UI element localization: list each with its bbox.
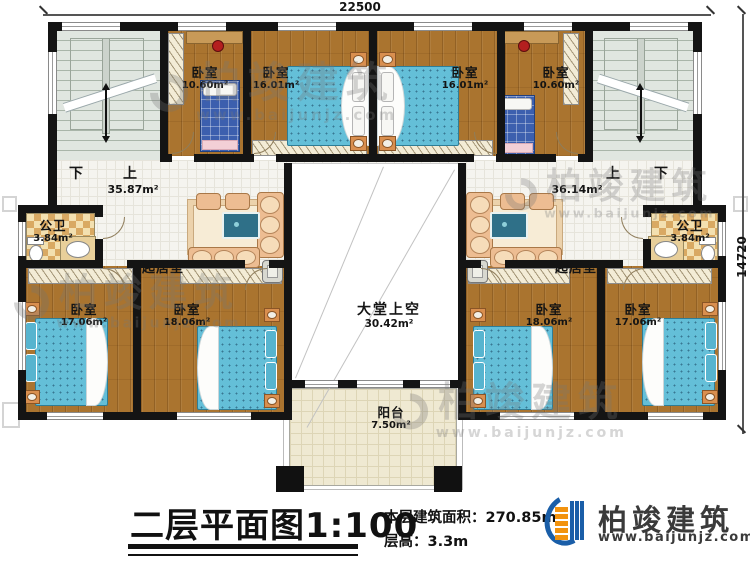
pillow (705, 354, 717, 382)
room-label-hall-void: 大堂上空 30.42m² (339, 303, 439, 330)
nightstand (702, 390, 718, 404)
pillow (381, 72, 394, 102)
pillow (25, 322, 37, 350)
dimension-top: 22500 (330, 0, 390, 14)
wall-segment (338, 380, 357, 388)
wall-segment (578, 154, 593, 162)
dimension-right: 14720 (735, 227, 749, 287)
armchair (500, 193, 525, 210)
wall-segment (496, 154, 556, 162)
nightstand (350, 136, 367, 151)
desk-lamp (212, 40, 224, 52)
blanket (202, 140, 238, 150)
plan-title-text: 二层平面图 (130, 506, 305, 546)
room-label-bedroom: 卧室 10.60m² (516, 66, 596, 91)
room-label-bedroom: 卧室 16.01m² (433, 66, 497, 91)
bed-sheet (642, 318, 664, 406)
room-label-balcony: 阳台 7.50m² (341, 406, 441, 431)
window (178, 22, 226, 31)
room-label-bedroom: 卧室 10.60m² (165, 66, 245, 91)
floor-area-line: 本层建筑面积：270.85m² (384, 506, 563, 527)
sofa-cushion (470, 216, 490, 234)
sofa-cushion (470, 196, 490, 214)
sofa-cushion (260, 216, 280, 234)
brand-logo-icon (545, 492, 593, 550)
balcony-column (276, 466, 304, 492)
room-label-bathroom: 公卫 3.84m² (660, 219, 720, 244)
wall-segment (48, 22, 57, 213)
stair-up-label: 上 (123, 163, 137, 183)
armchair (196, 193, 221, 210)
pillow (25, 354, 37, 382)
room-label-bedroom: 卧室 18.06m² (147, 303, 227, 328)
stair-direction-arrow (640, 90, 642, 136)
room-label-living: 起居室 (133, 262, 193, 277)
wall-segment (585, 22, 593, 162)
stair-down-label: 下 (654, 163, 668, 183)
window (524, 22, 572, 31)
wall-segment (643, 260, 726, 268)
nightstand (470, 394, 486, 408)
window (648, 412, 703, 420)
coffee-table (222, 212, 260, 239)
nightstand (264, 308, 280, 322)
wall-segment (133, 260, 141, 420)
nightstand (24, 302, 40, 316)
window (718, 302, 726, 370)
pillow (381, 106, 394, 136)
balcony-door-window (305, 380, 338, 388)
window (62, 22, 120, 31)
floor-plan-page: 22500 14720 (0, 0, 750, 561)
window (18, 302, 26, 370)
wall-segment (160, 154, 172, 162)
eave-outline (733, 196, 748, 212)
sofa-cushion (260, 196, 280, 214)
wall-segment (403, 380, 420, 388)
wall-segment (18, 260, 103, 268)
nightstand (379, 52, 396, 67)
arrow-up-icon (636, 83, 644, 90)
pillow (265, 362, 277, 390)
nightstand (24, 390, 40, 404)
logo-building-blue (570, 501, 585, 540)
arrow-down-icon (102, 136, 110, 143)
armchair (225, 193, 250, 210)
wall-segment (450, 380, 466, 388)
room-label-bedroom: 卧室 18.06m² (509, 303, 589, 328)
wall-segment (597, 260, 605, 420)
stair-left-area: 35.87m² (103, 184, 163, 196)
pillow (473, 362, 485, 390)
floor-height-value: 3.3m (428, 534, 469, 550)
pillow (352, 72, 365, 102)
pillow (352, 106, 365, 136)
wall-segment (276, 154, 474, 162)
balcony-floor (289, 388, 457, 486)
window (278, 22, 336, 31)
stair-down-label: 下 (69, 163, 83, 183)
wall-segment (194, 154, 254, 162)
room-label-bedroom: 卧室 17.06m² (44, 303, 124, 328)
floor-area-label: 本层建筑面积： (384, 510, 486, 526)
stair-right-area: 36.14m² (547, 184, 607, 196)
logo-building-orange (555, 507, 568, 540)
wall-segment (160, 22, 168, 162)
window (177, 412, 251, 420)
room-label-bedroom: 卧室 16.01m² (244, 66, 308, 91)
room-label-bedroom: 卧室 17.06m² (598, 303, 678, 328)
nightstand (470, 308, 486, 322)
wall-segment (369, 22, 377, 162)
wall-segment (643, 205, 726, 213)
void-boundary-line (292, 163, 458, 164)
wardrobe (607, 268, 712, 284)
hall-void-area (292, 163, 458, 381)
pillow (265, 330, 277, 358)
window (48, 52, 57, 114)
stair-direction-arrow (105, 90, 107, 136)
nightstand (264, 394, 280, 408)
balcony-door-window (420, 380, 450, 388)
window (47, 412, 103, 420)
nightstand (350, 52, 367, 67)
pillow (705, 322, 717, 350)
pillow (473, 330, 485, 358)
brand-website: www.baijunjz.com (598, 530, 750, 545)
wall-segment (643, 205, 651, 217)
wall-segment (95, 205, 103, 217)
arrow-down-icon (636, 136, 644, 143)
room-label-living: 起居室 (546, 262, 606, 277)
wall-segment (243, 31, 251, 162)
wall-segment (497, 31, 505, 162)
sofa-cushion (260, 236, 280, 254)
wall-segment (693, 22, 702, 213)
window (630, 22, 688, 31)
nightstand (379, 136, 396, 151)
watermark-url: www.baijunjz.com (436, 424, 627, 441)
window (414, 22, 472, 31)
desk-lamp (518, 40, 530, 52)
floor-height-label: 层高： (384, 534, 428, 550)
wall-segment (18, 205, 103, 213)
desk (502, 31, 559, 44)
window (693, 52, 702, 114)
dimension-line-top (43, 14, 711, 16)
title-underline-thin (128, 554, 358, 556)
plan-title: 二层平面图1:100 (130, 498, 418, 547)
arrow-up-icon (102, 83, 110, 90)
wall-segment (284, 380, 305, 388)
room-label-bathroom: 公卫 3.84m² (24, 219, 82, 244)
nightstand (702, 302, 718, 316)
balcony-column (434, 466, 462, 492)
window (500, 412, 574, 420)
stair-up-label: 上 (606, 163, 620, 183)
dimension-line-right (742, 14, 744, 434)
bed-sheet (197, 326, 219, 410)
sofa-cushion (470, 236, 490, 254)
coffee-table (490, 212, 528, 239)
floor-height-line: 层高：3.3m (384, 530, 468, 551)
balcony-door-window (357, 380, 403, 388)
eave-outline (2, 196, 17, 212)
